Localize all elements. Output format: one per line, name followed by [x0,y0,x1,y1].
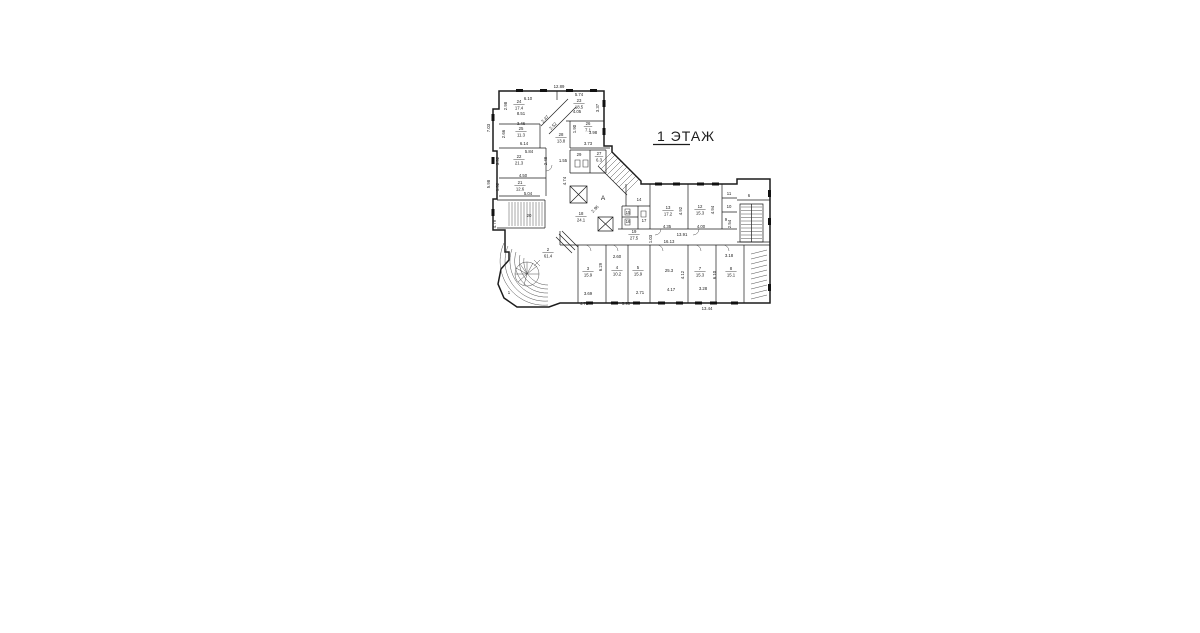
room-number: 19 [632,229,637,234]
room-number: 15 [626,210,631,215]
room-number: 8 [730,266,733,271]
dimension-label: 4.00 [697,224,706,229]
floor-plan-page: 1 ЭТАЖ [0,0,1200,633]
dimension-label: 2.96 [590,204,600,214]
dimension-label: 13.44 [702,306,713,311]
room-area: 6.3 [596,157,603,162]
dimension-label: 5.84 [525,149,534,154]
dimension-label: 3.37 [595,103,600,112]
room-number: 14 [637,197,642,202]
room-area: 13.8 [557,138,566,143]
dimension-label: 8.51 [517,111,526,116]
dimension-label: 2.47 [540,114,550,124]
room-number: 26 [586,121,591,126]
room-area: 15.3 [696,210,705,215]
dimension-label: 3.28 [699,286,708,291]
room-number: 17 [642,218,647,223]
room-number: 20 [527,213,532,218]
dimension-label: 3.98 [589,130,598,135]
dimension-label: 6.29 [598,262,603,271]
dimension-label: 4.12 [680,270,685,279]
room-number: 23 [577,98,582,103]
room-area: 24.1 [577,217,586,222]
room-number: 22 [517,154,522,159]
room-area: 15.1 [727,272,736,277]
dimension-label: 13.91 [677,232,688,237]
dimension-label: 4.78 [580,301,589,306]
dimension-label: 2.98 [503,101,508,110]
room-number: 21 [518,180,523,185]
room-number: 16 [626,219,631,224]
room-area: 17.4 [515,105,524,110]
room-number: 29 [577,152,582,157]
room-number: 27 [597,151,602,156]
dimension-label: 4.05 [573,109,582,114]
dimension-label: 5.98 [486,179,491,188]
room-number: 6 [748,193,751,198]
dimension-label: 4.79 [492,219,497,228]
dimension-label: 2.52 [548,121,558,131]
dimension-label: 6.14 [520,141,529,146]
dimension-label: 1.55 [559,158,568,163]
dimension-label: 5.90 [622,301,631,306]
dimension-label: 3.73 [584,141,593,146]
dimension-label: 1.52 [495,182,500,191]
room-number: 2 [547,247,550,252]
dimension-label: 4.74 [562,176,567,185]
dimension-label: 3.52 [495,156,500,165]
dimension-label: 2.60 [613,254,622,259]
room-number: 10 [727,204,732,209]
room-number: 12 [698,204,703,209]
room-area: 10.2 [613,271,622,276]
room-number: 4 [616,265,619,270]
dimension-label: 1.03 [648,234,653,243]
dimension-label: 2.54 [727,219,732,228]
room-number: 1 [508,290,511,295]
dimension-label: 7.03 [486,123,491,132]
room-number: 25 [519,126,524,131]
room-area: 21.3 [515,160,524,165]
room-area: 15.9 [584,272,593,277]
room-area: 27.5 [630,235,639,240]
staircase-entrance-east [751,250,767,299]
dimension-label: 2.48 [543,156,548,165]
dimension-label: 5.74 [575,92,584,97]
room-number: 5 [637,265,640,270]
room-area: 17.2 [664,211,673,216]
room-area: 15.3 [696,272,705,277]
dimension-label: 2.66 [501,129,506,138]
axis-labels: A [601,195,606,202]
room-number: 7 [699,266,702,271]
room-number: 13 [666,205,671,210]
room-area: 15.9 [634,271,643,276]
room-number: 11 [727,191,732,196]
floor-plan-drawing: 1 ЭТАЖ [0,0,1200,633]
room-number: 28 [559,132,564,137]
staircase-west [509,202,542,226]
dimension-label: 4.92 [678,206,683,215]
drawing-title: 1 ЭТАЖ [653,128,715,145]
dimension-label: 4.94 [710,205,715,214]
dimension-label: 5.04 [524,191,533,196]
dimension-label: 2.71 [636,290,645,295]
dimension-label: 3.18 [725,253,734,258]
room-number: 18 [579,211,584,216]
dimension-label: 3.69 [584,291,593,296]
floor-title-text: 1 ЭТАЖ [657,128,715,144]
dimension-label: 6.10 [712,270,717,279]
room-area: 61.4 [544,253,553,258]
dimension-label: 6.10 [524,96,533,101]
room-number: 3 [587,266,590,271]
axis-label: A [601,195,606,202]
dimension-label: 4.17 [667,287,676,292]
dimension-label: 16.13 [664,239,675,244]
dimension-label: 3.46 [517,121,526,126]
room-area: 25.3 [665,268,674,273]
wc-fixtures [575,160,646,225]
room-area: 11.3 [517,132,526,137]
dimension-label: 1.90 [572,124,577,133]
dimension-label: 4.50 [519,173,528,178]
dimension-label: 12.89 [554,84,565,89]
room-number: 24 [517,99,522,104]
dimension-label: 4.35 [663,224,672,229]
